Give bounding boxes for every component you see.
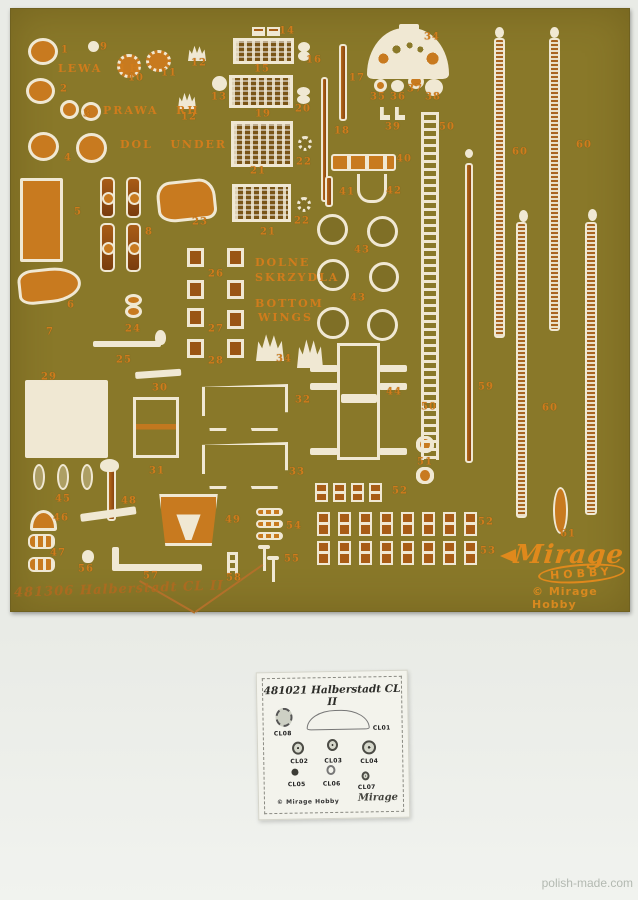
fret-part-rib (202, 442, 288, 489)
fret-part-push (126, 223, 141, 272)
fret-part-sq (227, 248, 244, 267)
fret-part-sq (187, 248, 204, 267)
decal-mirage-logo: Mirage (358, 792, 398, 804)
fret-part-line (93, 341, 161, 347)
part-number-label: 52 (478, 517, 494, 528)
fret-part-lens61 (553, 487, 568, 534)
fret-part-ribrod (494, 38, 505, 338)
fret-part-buckle (401, 512, 414, 536)
fret-part-buckle (315, 483, 328, 502)
part-number-label: 5 (74, 207, 82, 218)
part-number-label: 51 (417, 457, 433, 468)
fret-part-buckle (422, 541, 435, 565)
fret-part-buckle (401, 541, 414, 565)
part-number-label: 25 (116, 355, 132, 366)
fret-copyright: © Mirage Hobby (532, 585, 638, 611)
fret-part-lens (57, 464, 69, 490)
fret-part-fillrect (399, 24, 419, 38)
part-number-label: 43 (350, 293, 366, 304)
decal-item-cl04 (362, 740, 376, 754)
fret-part-push (126, 177, 141, 218)
fret-part-buckle (443, 512, 456, 536)
fret-part-buckle (317, 512, 330, 536)
part-number-label: 55 (284, 554, 300, 565)
fret-part-frame31 (133, 397, 179, 458)
fret-part-sq (187, 339, 204, 358)
part-number-label: 16 (306, 55, 322, 66)
part-number-label: 34 (276, 354, 292, 365)
part-number-label: 36 (390, 92, 406, 103)
fret-part-sq (187, 308, 204, 327)
part-number-label: 13 (211, 92, 227, 103)
fret-part-disc (367, 216, 398, 247)
fret-part-ell (380, 107, 390, 120)
part-number-label: 19 (255, 109, 271, 120)
part-number-label: 29 (41, 372, 57, 383)
fret-part-disc (88, 41, 99, 52)
part-number-label: 34 (424, 32, 440, 43)
part-number-label: 21 (250, 166, 266, 177)
fret-part-plate (20, 178, 63, 262)
fret-part-lens (33, 464, 45, 490)
decal-item-label: CL05 (288, 781, 306, 788)
part-number-label: 43 (354, 245, 370, 256)
part-number-label: 47 (50, 548, 66, 559)
fret-part-gri (229, 75, 293, 108)
decal-item-label: CL08 (274, 730, 292, 737)
fret-part-gear (297, 197, 311, 212)
fret-part-ell (395, 107, 405, 120)
part-number-label: 49 (225, 515, 241, 526)
fret-part-cowl23 (155, 177, 218, 224)
decal-sheet: 481021 Halberstadt CL II © Mirage Hobby … (256, 670, 411, 821)
part-number-label: 2 (60, 84, 68, 95)
decal-item-label: CL01 (373, 724, 391, 731)
part-number-label: 54 (286, 521, 302, 532)
part-number-label: 37 (407, 84, 423, 95)
fret-part-sq (227, 339, 244, 358)
decal-item-label: CL03 (324, 757, 342, 764)
fret-part-disc (28, 38, 58, 65)
part-number-label: 28 (208, 356, 224, 367)
fret-part-line (310, 365, 338, 372)
fret-part-buckle (333, 483, 346, 502)
fret-part-line (341, 394, 377, 403)
fret-part-buckle (252, 27, 265, 36)
part-number-label: 48 (121, 496, 137, 507)
fret-text: LEWA LH (58, 62, 142, 75)
fret-part-line (135, 369, 181, 379)
fret-part-dumb (256, 532, 283, 540)
fret-part-buckle (359, 512, 372, 536)
fret-part-dumb (28, 557, 55, 572)
fret-part-gri (233, 38, 294, 64)
decal-item-cl08 (275, 708, 292, 727)
part-number-label: 22 (296, 157, 312, 168)
part-number-label: 44 (386, 387, 402, 398)
fret-part-line (310, 448, 338, 455)
part-number-label: 23 (192, 217, 208, 228)
fret-part-claw (297, 338, 323, 368)
fret-part-disc (465, 149, 473, 158)
part-number-label: 15 (254, 64, 270, 75)
decal-item-cl06 (326, 765, 335, 775)
fret-part-disc (125, 305, 142, 318)
fret-text: BOTTOM (255, 297, 324, 310)
fret-part-buckle (422, 512, 435, 536)
part-number-label: 42 (386, 186, 402, 197)
fret-part-lens (81, 464, 93, 490)
fret-part-dumb (256, 520, 283, 528)
fret-part-buckle (380, 512, 393, 536)
part-number-label: 9 (100, 42, 108, 53)
part-number-label: 50 (439, 122, 455, 133)
fret-part-disc (588, 209, 597, 221)
part-number-label: 46 (53, 513, 69, 524)
fret-part-disc (317, 214, 348, 245)
decal-copyright: © Mirage Hobby (277, 798, 339, 806)
fret-part-rib (202, 384, 288, 431)
fret-part-rod (325, 176, 333, 207)
fret-part-tpin (267, 556, 279, 582)
fret-part-sq (227, 310, 244, 329)
part-number-label: 53 (480, 546, 496, 557)
fret-part-blob (100, 459, 119, 472)
fret-part-dumb (256, 508, 283, 516)
photo-of-pe-fret-and-decal: 1923456781011121213141516171819202121222… (0, 0, 638, 900)
part-number-label: 60 (542, 403, 558, 414)
decal-item-label: CL02 (290, 758, 308, 765)
part-number-label: 12 (191, 58, 207, 69)
fret-part-blob (82, 550, 94, 563)
fret-part-hbar (331, 154, 396, 171)
fret-part-disc (391, 80, 404, 92)
decal-item-cl07 (361, 771, 369, 780)
part-number-label: 22 (294, 216, 310, 227)
fret-part-buckle (443, 541, 456, 565)
part-number-label: 35 (370, 92, 386, 103)
part-number-label: 50 (421, 402, 437, 413)
part-number-label: 58 (226, 573, 242, 584)
part-number-label: 11 (161, 68, 177, 79)
fret-part-line (310, 383, 338, 390)
fret-part-buckle (338, 541, 351, 565)
part-number-label: 61 (560, 529, 576, 540)
part-number-label: 33 (289, 467, 305, 478)
fret-text: SKRZYDLA (255, 271, 339, 284)
fret-part-disc (369, 262, 399, 292)
fret-text: WINGS (258, 311, 313, 324)
watermark: polish-made.com (542, 876, 633, 890)
fret-part-sq (227, 280, 244, 299)
fret-part-buckle (464, 512, 477, 536)
fret-part-push (100, 177, 115, 218)
fret-part-disc (76, 133, 107, 163)
part-number-label: 45 (55, 494, 71, 505)
part-number-label: 20 (295, 104, 311, 115)
part-number-label: 40 (396, 154, 412, 165)
part-number-label: 7 (46, 327, 54, 338)
decal-item-label: CL04 (360, 758, 378, 765)
fret-part-buckle (380, 541, 393, 565)
fret-part-buckle (317, 541, 330, 565)
fret-part-bow (416, 467, 434, 484)
fret-part-blob (155, 330, 166, 345)
part-number-label: 18 (334, 126, 350, 137)
part-number-label: 27 (208, 324, 224, 335)
part-number-label: 21 (260, 227, 276, 238)
fret-part-gear (298, 136, 312, 151)
fret-part-line (379, 448, 407, 455)
part-number-label: 41 (339, 187, 355, 198)
fret-part-ribrod (549, 38, 560, 331)
decal-item-label: CL07 (358, 784, 376, 791)
part-number-label: 14 (279, 26, 295, 37)
fret-part-ladder (227, 552, 238, 574)
fret-part-disc (26, 78, 55, 104)
fret-part-disc (374, 79, 387, 92)
fret-part-rod (339, 44, 347, 121)
decal-title: 481021 Halberstadt CL II (257, 683, 407, 710)
fret-part-disc (317, 307, 349, 339)
fret-part-gri (231, 121, 293, 167)
part-number-label: 52 (392, 486, 408, 497)
fret-part-buckle (351, 483, 364, 502)
fret-part-buckle (369, 483, 382, 502)
part-number-label: 30 (152, 383, 168, 394)
fret-part-fillrect (25, 380, 108, 458)
part-number-label: 60 (576, 140, 592, 151)
part-number-label: 3 (83, 109, 91, 120)
fret-text: DOL UNDER (120, 138, 227, 151)
decal-item-cl05 (291, 769, 298, 776)
part-number-label: 6 (67, 300, 75, 311)
fret-part-trap49 (158, 494, 219, 546)
part-number-label: 60 (512, 147, 528, 158)
part-number-label: 59 (478, 382, 494, 393)
fret-part-sq (187, 280, 204, 299)
decal-item-cl01 (306, 709, 369, 730)
fret-part-buckle (338, 512, 351, 536)
part-number-label: 4 (64, 153, 72, 164)
part-number-label: 8 (145, 227, 153, 238)
part-number-label: 1 (61, 45, 69, 56)
fret-part-clev (357, 174, 387, 203)
fret-part-line (379, 365, 407, 372)
fret-part-disc (28, 132, 59, 161)
fret-part-disc (495, 27, 504, 38)
fret-part-disc (60, 100, 79, 119)
fret-part-buckle (359, 541, 372, 565)
part-number-label: 26 (208, 269, 224, 280)
part-number-label: 24 (125, 324, 141, 335)
fret-part-disc (550, 27, 559, 38)
decal-item-cl03 (327, 739, 338, 751)
fret-part-disc (212, 76, 227, 91)
fret-part-ribrod (585, 222, 597, 515)
fret-part-rod (465, 163, 473, 463)
part-number-label: 56 (78, 564, 94, 575)
part-number-label: 31 (149, 466, 165, 477)
fret-part-line (112, 547, 119, 569)
fret-text: DOLNE (255, 256, 310, 269)
fret-part-disc (519, 210, 528, 222)
mirage-hobby-logo: Mirage HOBBY (504, 540, 628, 584)
fret-part-gri (232, 184, 291, 222)
fret-part-buckle (464, 541, 477, 565)
fret-part-ribrod (516, 222, 527, 518)
part-number-label: 17 (349, 73, 365, 84)
fret-text: PRAWA RH (103, 104, 200, 117)
fret-part-disc (367, 309, 398, 341)
part-number-label: 32 (295, 395, 311, 406)
part-number-label: 39 (385, 122, 401, 133)
decal-item-cl02 (292, 742, 304, 755)
fret-part-push (100, 223, 115, 272)
part-number-label: 38 (425, 92, 441, 103)
decal-item-label: CL06 (323, 780, 341, 787)
